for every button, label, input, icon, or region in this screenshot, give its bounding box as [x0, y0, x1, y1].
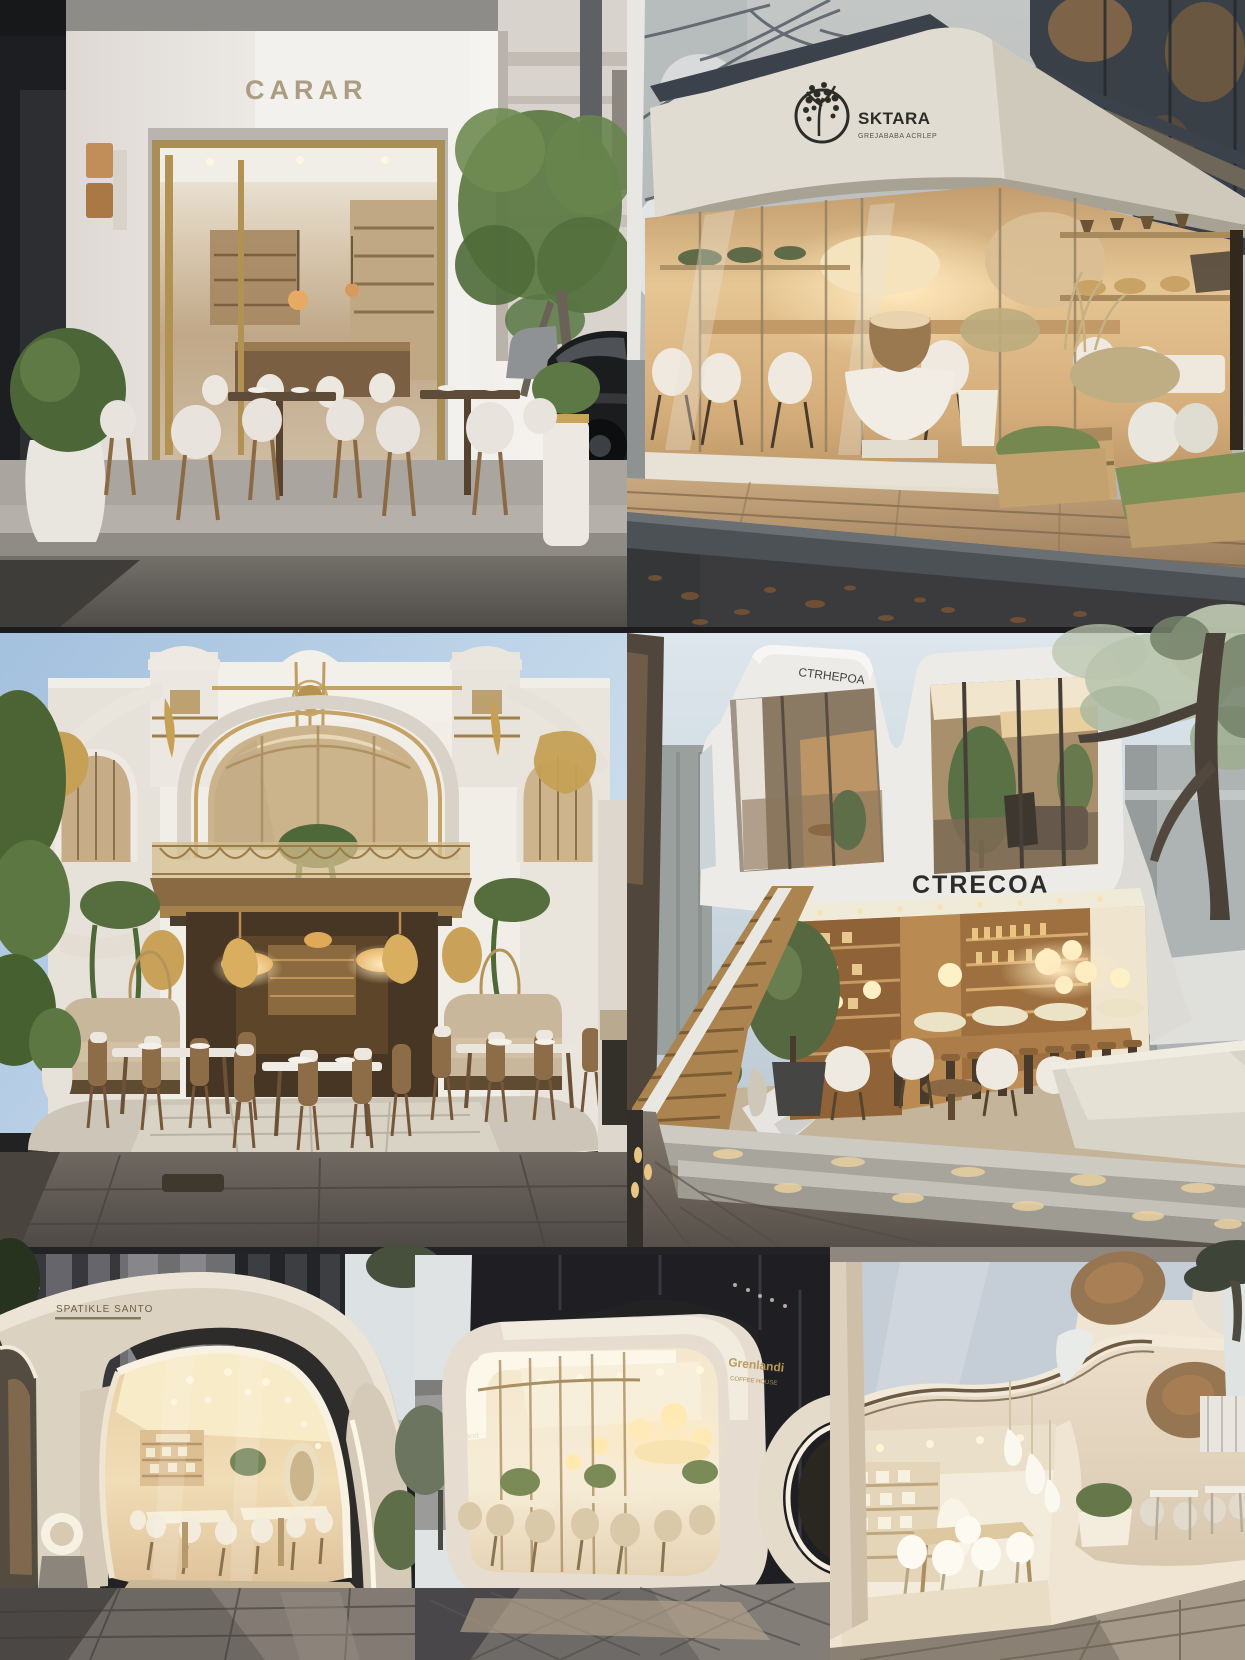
- svg-text:GREJABABA ACRLEP: GREJABABA ACRLEP: [858, 133, 937, 140]
- svg-text:SPATIKLE SANTO: SPATIKLE SANTO: [56, 1304, 153, 1315]
- svg-text:CARAR: CARAR: [245, 75, 368, 105]
- svg-text:SKTARA: SKTARA: [858, 109, 931, 128]
